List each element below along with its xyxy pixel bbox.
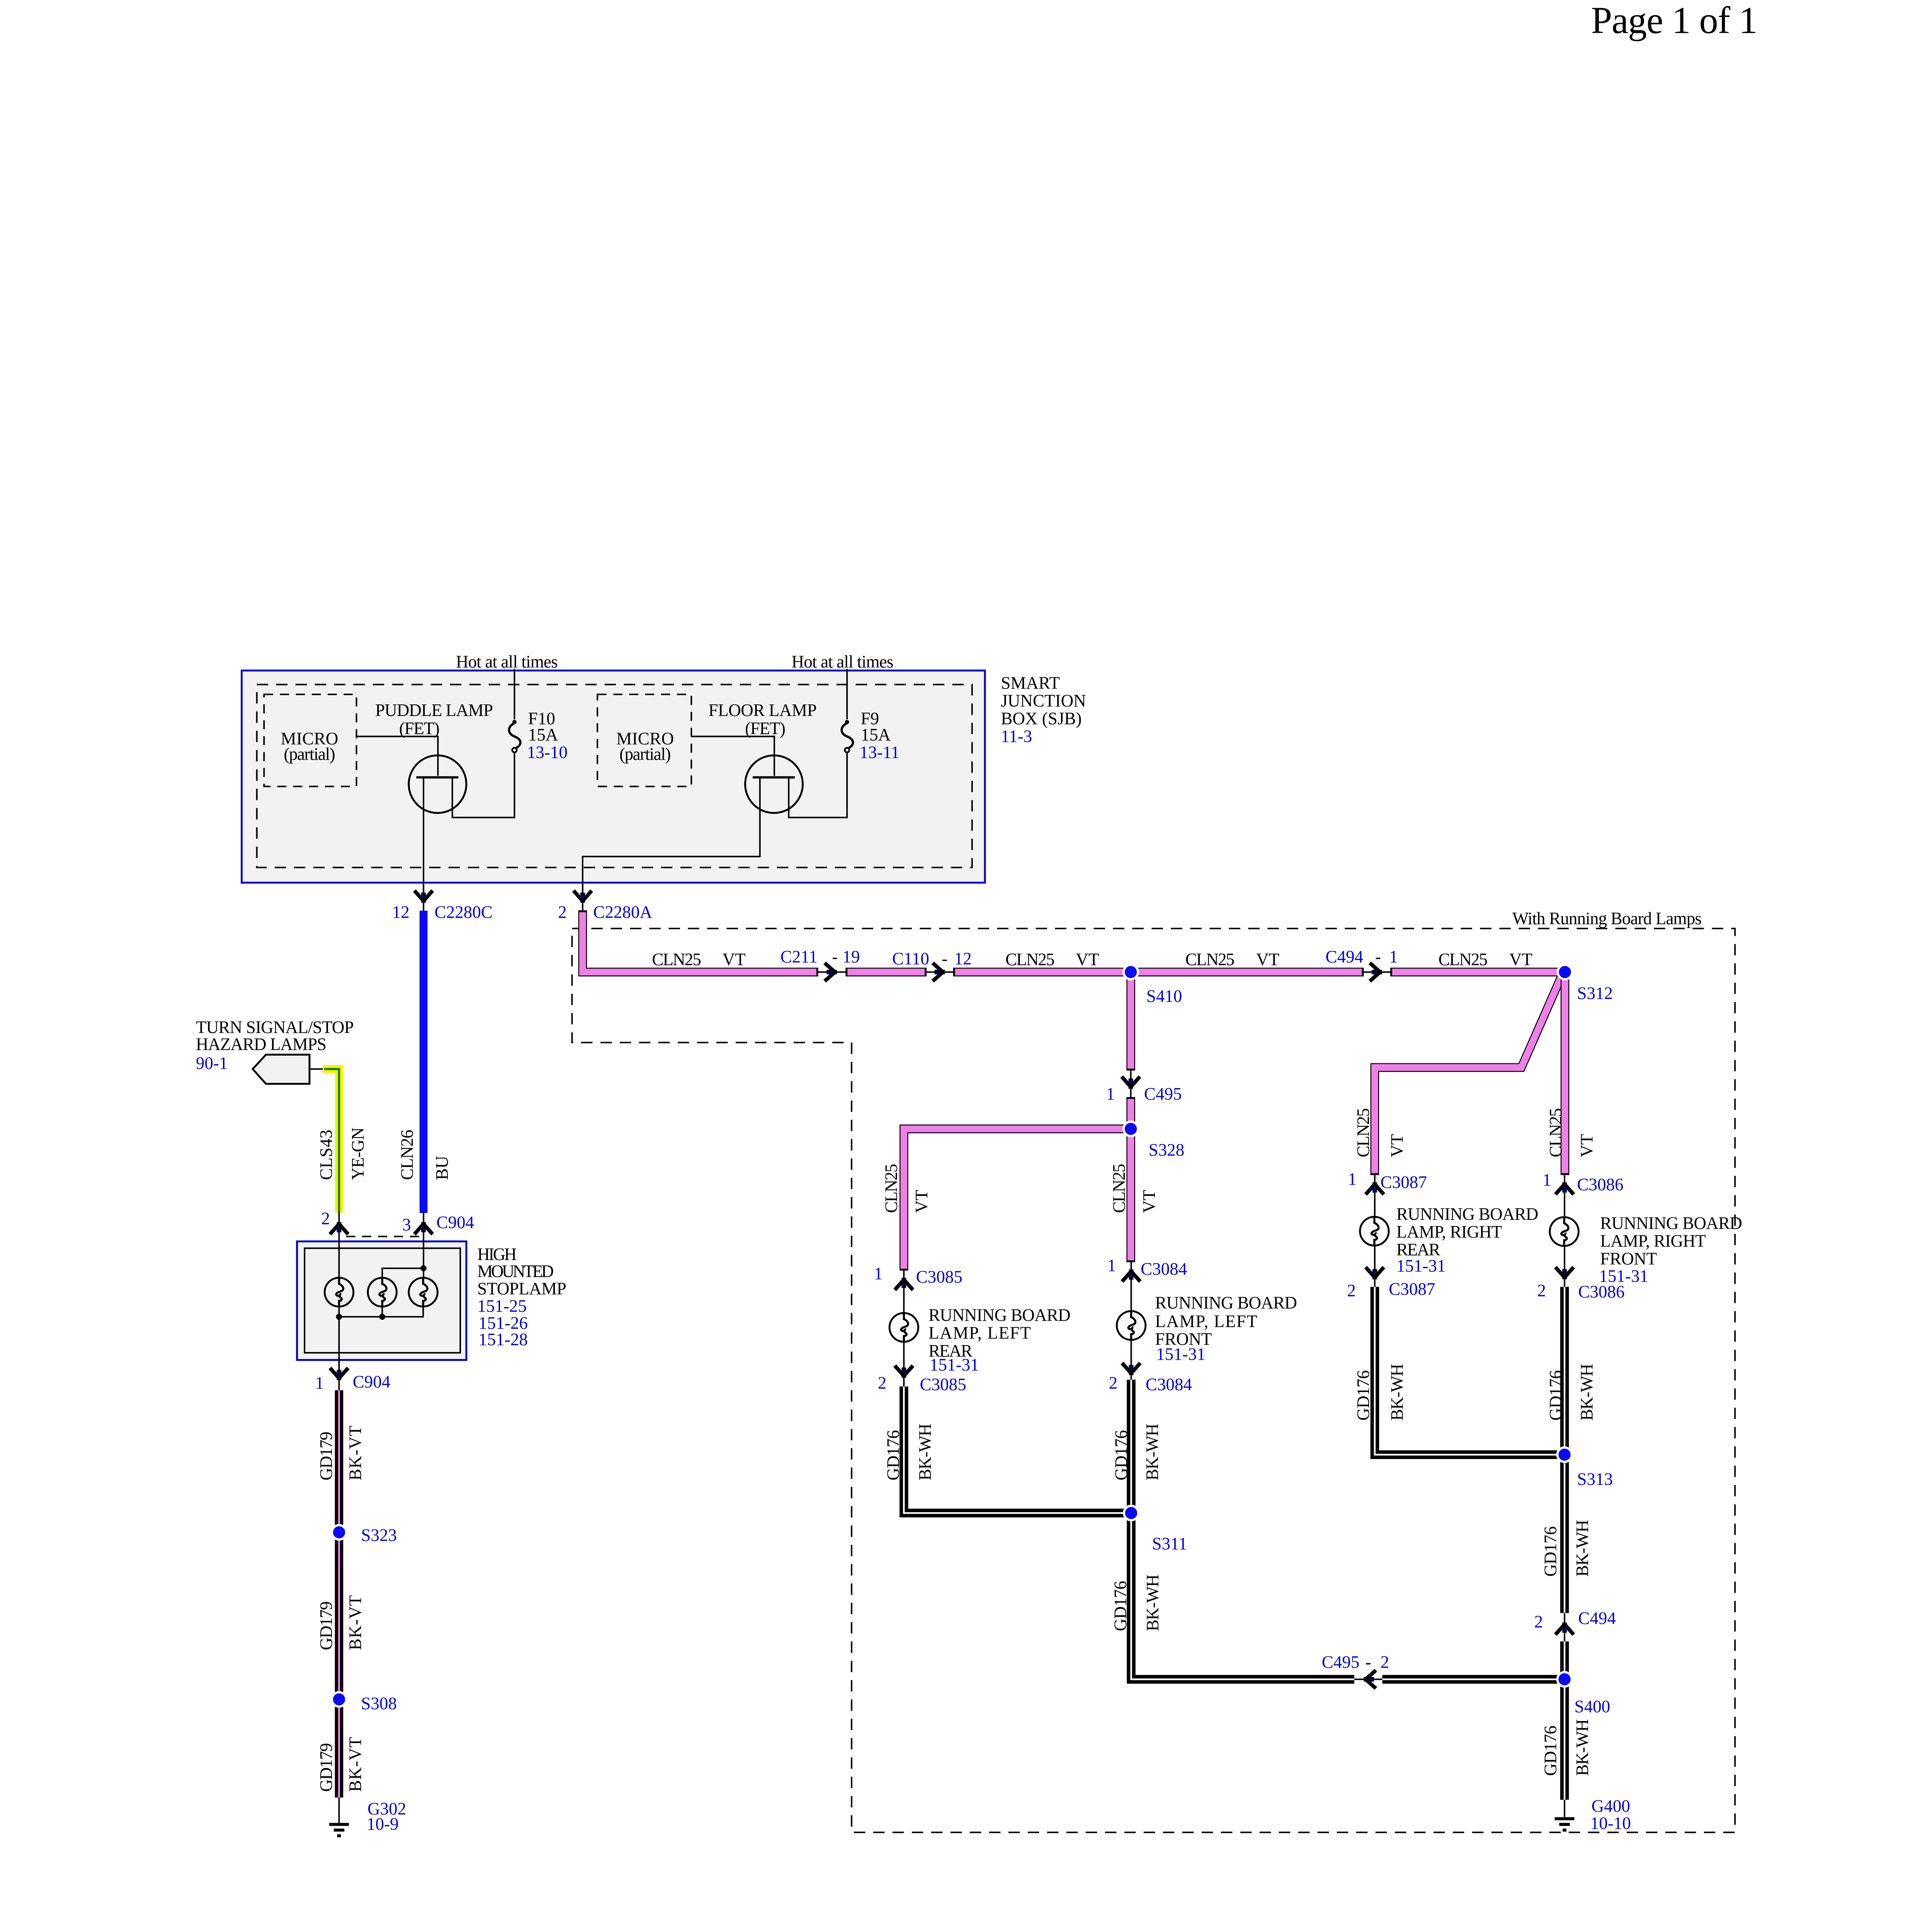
svg-text:PUDDLE LAMP: PUDDLE LAMP [375,701,493,720]
svg-text:151-28: 151-28 [478,1330,528,1349]
svg-text:GD176: GD176 [1541,1726,1560,1776]
svg-text:C494: C494 [1325,947,1363,966]
svg-text:GD176: GD176 [1541,1526,1560,1577]
svg-text:STOPLAMP: STOPLAMP [477,1279,566,1298]
svg-text:C3084: C3084 [1141,1259,1187,1279]
svg-text:C3085: C3085 [920,1375,966,1394]
svg-text:151-31: 151-31 [1599,1267,1648,1286]
svg-text:FLOOR LAMP: FLOOR LAMP [708,701,816,720]
svg-text:C3087: C3087 [1381,1173,1427,1192]
svg-text:3: 3 [402,1215,411,1234]
svg-text:151-31: 151-31 [930,1355,979,1374]
svg-text:BK-WH: BK-WH [915,1423,935,1480]
svg-text:(partial): (partial) [619,745,671,764]
svg-text:151-31: 151-31 [1156,1345,1206,1364]
svg-text:G400: G400 [1592,1796,1630,1816]
svg-text:15A: 15A [861,725,891,745]
svg-text:(FET): (FET) [745,719,786,738]
svg-text:151-31: 151-31 [1396,1256,1446,1276]
svg-text:2: 2 [1537,1281,1546,1300]
svg-text:C904: C904 [436,1213,474,1232]
svg-text:RUNNING BOARD: RUNNING BOARD [1396,1204,1539,1224]
svg-text:BK-VT: BK-VT [345,1425,365,1480]
svg-text:FRONT: FRONT [1600,1249,1657,1269]
svg-text:1: 1 [1389,947,1398,966]
svg-text:15A: 15A [528,725,558,745]
svg-text:(partial): (partial) [284,745,335,764]
svg-text:-: - [1365,1653,1371,1672]
svg-text:C3084: C3084 [1146,1375,1192,1394]
svg-text:S308: S308 [361,1694,397,1713]
svg-text:151-25: 151-25 [477,1296,527,1316]
svg-text:Hot at all times: Hot at all times [792,652,894,671]
svg-text:CLN25: CLN25 [1354,1108,1373,1157]
svg-text:GD176: GD176 [1112,1430,1131,1480]
svg-text:CLN25: CLN25 [1005,950,1054,969]
svg-text:2: 2 [321,1209,330,1228]
svg-text:BOX (SJB): BOX (SJB) [1001,709,1082,728]
svg-text:1: 1 [315,1373,324,1393]
svg-text:C494: C494 [1578,1609,1616,1628]
svg-text:BK-WH: BK-WH [1577,1364,1597,1420]
svg-text:GD179: GD179 [316,1601,336,1650]
svg-text:S312: S312 [1577,983,1613,1003]
svg-text:-: - [1375,947,1381,966]
svg-text:GD176: GD176 [1546,1370,1565,1420]
svg-text:(FET): (FET) [399,719,440,738]
svg-text:1: 1 [1107,1256,1116,1275]
svg-text:VT: VT [1256,950,1279,969]
svg-text:1: 1 [1106,1084,1115,1104]
svg-text:C3087: C3087 [1389,1279,1435,1299]
svg-text:LAMP, RIGHT: LAMP, RIGHT [1600,1231,1706,1250]
svg-text:C495: C495 [1322,1653,1360,1672]
svg-text:S328: S328 [1149,1140,1185,1160]
svg-text:S400: S400 [1575,1697,1611,1716]
svg-text:90-1: 90-1 [196,1054,228,1073]
svg-text:MOUNTED: MOUNTED [477,1262,554,1281]
svg-text:-: - [832,947,838,966]
svg-text:12: 12 [392,902,410,922]
svg-text:CLN25: CLN25 [652,950,701,969]
svg-text:VT: VT [1076,950,1099,969]
svg-text:-: - [942,949,947,968]
svg-text:C3086: C3086 [1577,1175,1623,1194]
svg-text:S410: S410 [1146,986,1182,1006]
svg-text:C495: C495 [1144,1084,1182,1104]
svg-text:2: 2 [1347,1281,1356,1300]
svg-text:CLN25: CLN25 [1439,950,1488,969]
svg-text:BK-WH: BK-WH [1143,1575,1162,1631]
svg-text:C2280C: C2280C [435,902,493,922]
svg-text:HAZARD LAMPS: HAZARD LAMPS [196,1035,327,1054]
svg-text:1: 1 [1543,1170,1551,1190]
svg-text:1: 1 [874,1264,883,1283]
svg-text:CLN25: CLN25 [882,1164,901,1213]
svg-text:2: 2 [878,1373,887,1393]
svg-text:10-9: 10-9 [367,1814,399,1833]
svg-text:With Running Board Lamps: With Running Board Lamps [1512,909,1702,928]
svg-text:BK-VT: BK-VT [345,1595,365,1650]
svg-text:CLN25: CLN25 [1546,1108,1565,1157]
svg-text:YE-GN: YE-GN [348,1128,367,1180]
svg-text:VT: VT [1139,1190,1159,1213]
svg-text:2: 2 [1109,1373,1118,1393]
svg-text:13-10: 13-10 [527,743,568,762]
svg-text:GD176: GD176 [1111,1581,1130,1631]
svg-text:VT: VT [1577,1134,1597,1157]
svg-text:C211: C211 [781,947,818,966]
svg-text:Page 1 of 1: Page 1 of 1 [1591,0,1758,41]
svg-text:11-3: 11-3 [1001,727,1032,746]
svg-text:VT: VT [1387,1134,1406,1157]
svg-text:S323: S323 [361,1526,397,1545]
svg-text:CLN26: CLN26 [398,1130,417,1180]
svg-text:C3085: C3085 [916,1267,963,1287]
svg-text:C110: C110 [892,949,929,968]
svg-text:CLN25: CLN25 [1109,1164,1129,1213]
svg-text:BU: BU [432,1156,452,1180]
svg-text:19: 19 [842,947,860,966]
svg-text:13-11: 13-11 [860,743,900,762]
svg-text:RUNNING BOARD: RUNNING BOARD [1155,1293,1297,1312]
svg-text:2: 2 [1534,1612,1543,1631]
svg-text:GD179: GD179 [316,1432,336,1480]
svg-text:GD176: GD176 [1354,1370,1373,1420]
svg-text:BK-WH: BK-WH [1387,1364,1406,1420]
svg-text:LAMP, LEFT: LAMP, LEFT [929,1323,1031,1343]
svg-text:TURN SIGNAL/STOP: TURN SIGNAL/STOP [196,1018,354,1037]
svg-text:1: 1 [1348,1170,1357,1189]
svg-text:BK-WH: BK-WH [1143,1423,1162,1480]
svg-text:CLS43: CLS43 [316,1130,336,1180]
svg-text:LAMP, LEFT: LAMP, LEFT [1155,1311,1257,1331]
svg-text:Hot at all times: Hot at all times [456,652,558,671]
svg-text:12: 12 [954,949,972,968]
svg-text:S311: S311 [1152,1534,1187,1553]
svg-text:2: 2 [1381,1653,1389,1672]
svg-text:RUNNING BOARD: RUNNING BOARD [929,1306,1071,1325]
svg-text:HIGH: HIGH [477,1245,517,1264]
svg-text:GD176: GD176 [883,1430,903,1480]
svg-text:SMART: SMART [1001,673,1060,692]
svg-text:S313: S313 [1577,1469,1613,1489]
svg-text:C2280A: C2280A [593,902,652,922]
svg-text:CLN25: CLN25 [1185,950,1235,969]
svg-text:JUNCTION: JUNCTION [1001,691,1086,710]
svg-text:2: 2 [558,902,567,922]
svg-text:LAMP, RIGHT: LAMP, RIGHT [1396,1222,1502,1242]
svg-text:C904: C904 [353,1372,391,1391]
svg-text:VT: VT [723,950,746,969]
svg-text:10-10: 10-10 [1590,1813,1631,1833]
svg-text:RUNNING BOARD: RUNNING BOARD [1600,1213,1742,1233]
svg-text:VT: VT [912,1190,931,1213]
svg-text:GD179: GD179 [316,1743,336,1792]
svg-text:BK-WH: BK-WH [1573,1719,1592,1776]
svg-text:BK-WH: BK-WH [1573,1520,1592,1577]
svg-text:VT: VT [1509,950,1532,969]
svg-text:BK-VT: BK-VT [345,1737,365,1792]
